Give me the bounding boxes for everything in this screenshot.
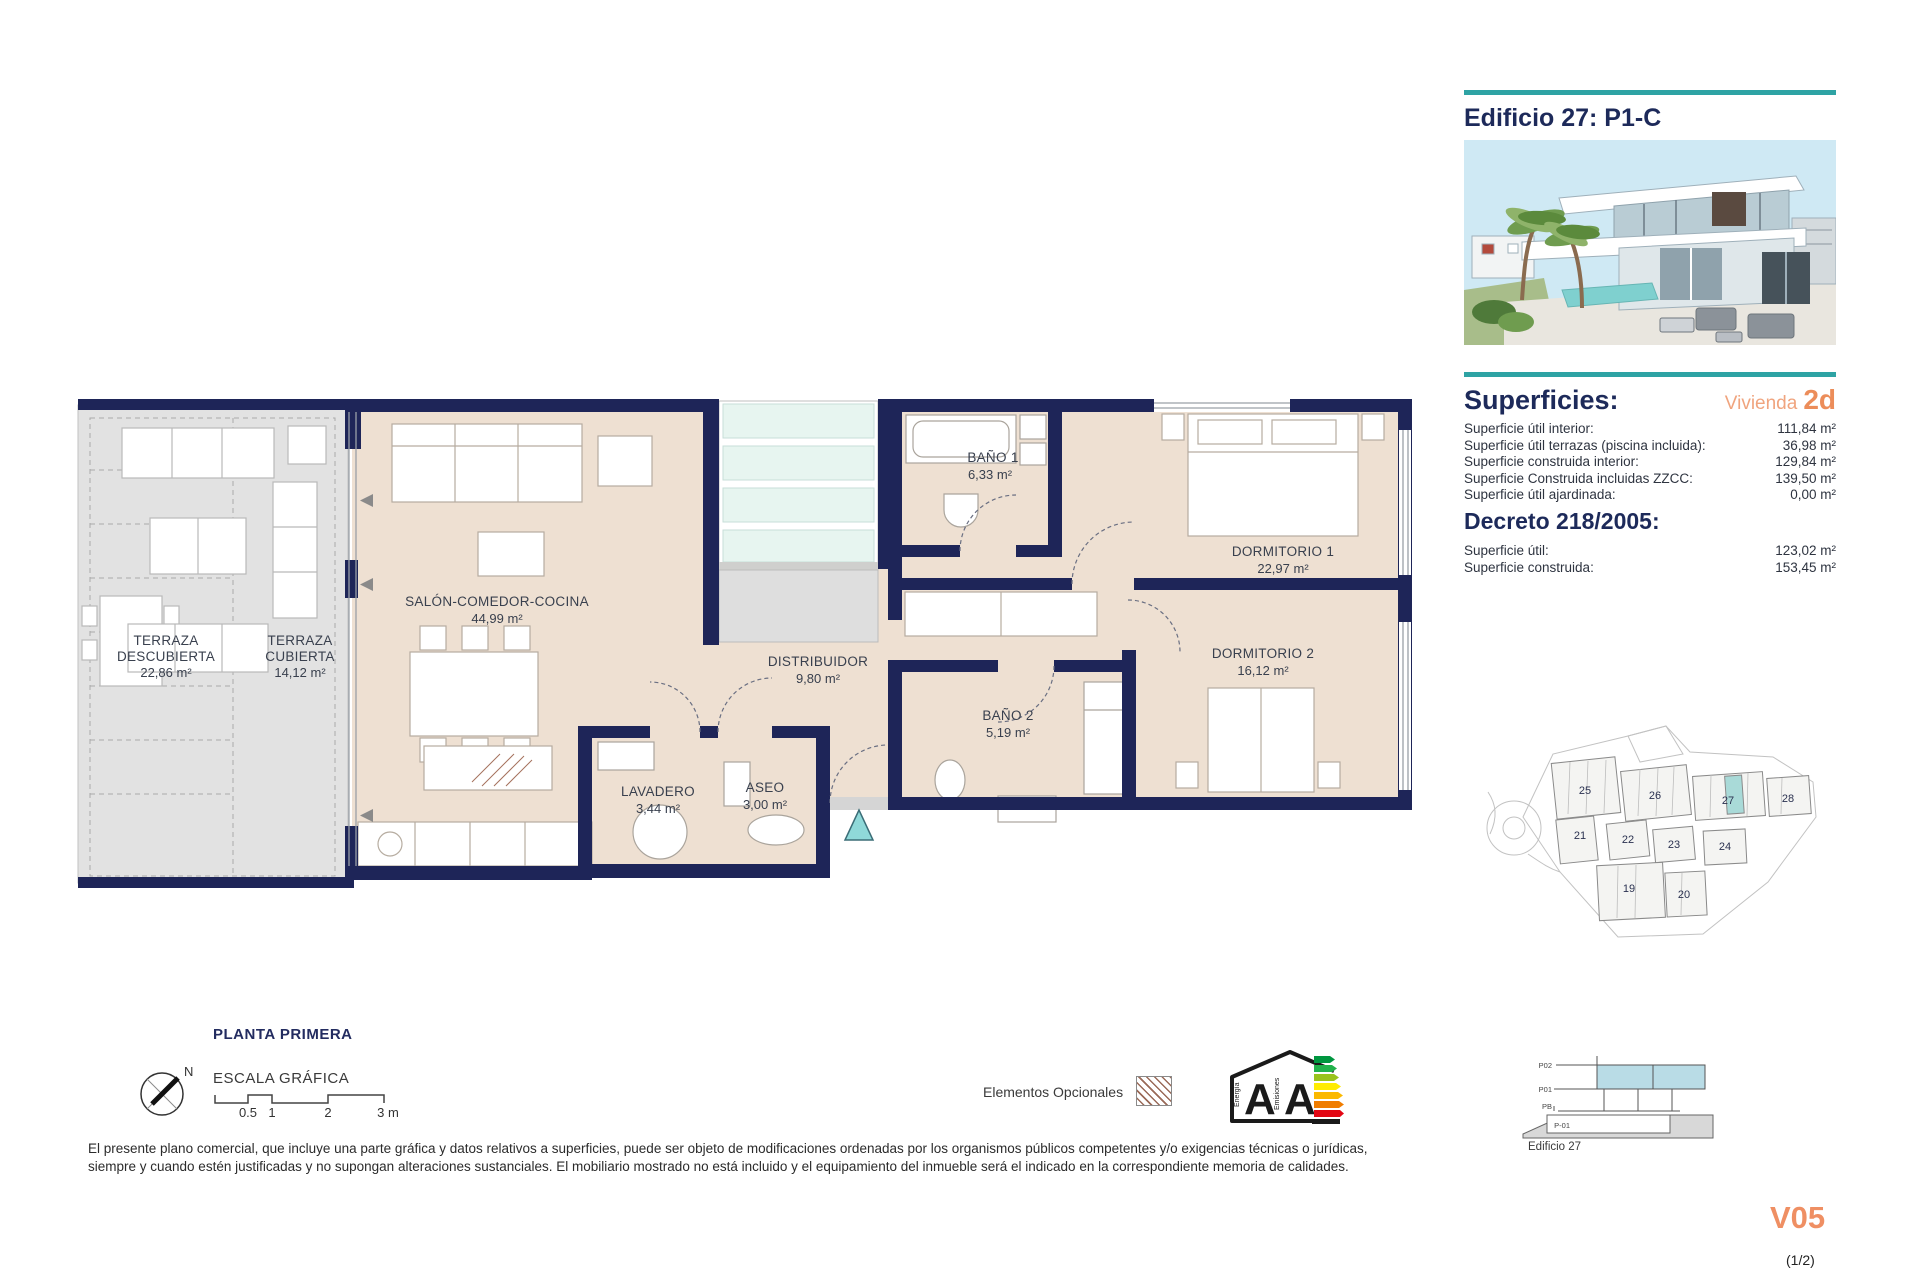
lightwell: [719, 401, 878, 642]
page-number: (1/2): [1786, 1252, 1815, 1268]
page-title: Edificio 27: P1-C: [1464, 104, 1661, 133]
decreto-table: Superficie útil: 123,02 m² Superficie co…: [1464, 543, 1836, 576]
site-plan: 25 26 27 28 21 22 23 24 19 20: [1468, 722, 1868, 957]
room-label-salon: SALÓN-COMEDOR-COCINA: [405, 594, 589, 609]
corridor-closets: [905, 592, 1097, 636]
sup-value-0: 111,84 m²: [1777, 421, 1836, 438]
room-area-terraza-descubierta: 22,86 m²: [140, 665, 192, 680]
entrance-marker: [830, 797, 888, 840]
villa-render-image: [1464, 140, 1836, 345]
superficies-row: Superficie construida interior: 129,84 m…: [1464, 454, 1836, 471]
building-28: 28: [1782, 793, 1794, 805]
decreto-value-0: 123,02 m²: [1775, 543, 1836, 560]
decreto-heading: Decreto 218/2005:: [1464, 508, 1660, 535]
decreto-label-0: Superficie útil:: [1464, 543, 1549, 560]
energy-letter-1: A: [1244, 1075, 1276, 1124]
energy-bars: [1314, 1056, 1344, 1117]
room-area-bano1: 6,33 m²: [968, 467, 1013, 482]
superficies-row: Superficie útil ajardinada: 0,00 m²: [1464, 487, 1836, 504]
teal-divider-top: [1464, 90, 1836, 95]
level-pb: PB: [1542, 1102, 1552, 1111]
room-label-terraza-cubierta-2: CUBIERTA: [265, 649, 334, 664]
room-label-bano2: BAÑO 2: [982, 708, 1033, 723]
level-p-01: P-01: [1554, 1121, 1570, 1130]
building-23: 23: [1668, 839, 1680, 851]
room-area-terraza-cubierta: 14,12 m²: [274, 665, 326, 680]
vivienda-unit: 2d: [1803, 384, 1836, 415]
scale-tick-2: 2: [324, 1105, 331, 1118]
building-26: 26: [1649, 790, 1661, 802]
optional-elements-hatch-swatch: [1136, 1076, 1172, 1106]
disclaimer-line-1: El presente plano comercial, que incluye…: [88, 1140, 1588, 1158]
room-area-bano2: 5,19 m²: [986, 725, 1031, 740]
room-area-distribuidor: 9,80 m²: [796, 671, 841, 686]
vivienda-label: Vivienda: [1725, 393, 1798, 414]
building-section: P02 P01 PB P-01: [1520, 1052, 1730, 1140]
sup-label-2: Superficie construida interior:: [1464, 454, 1639, 471]
room-label-bano1: BAÑO 1: [967, 450, 1018, 465]
building-22: 22: [1622, 834, 1634, 846]
room-label-terraza-descubierta-2: DESCUBIERTA: [117, 649, 215, 664]
room-label-terraza-descubierta: TERRAZA: [133, 633, 198, 648]
scale-tick-3: 3 m: [377, 1105, 399, 1118]
sup-label-0: Superficie útil interior:: [1464, 421, 1594, 438]
teal-divider-middle: [1464, 372, 1836, 377]
room-label-dormitorio1: DORMITORIO 1: [1232, 544, 1334, 559]
room-label-lavadero: LAVADERO: [621, 784, 695, 799]
room-label-aseo: ASEO: [746, 780, 785, 795]
building-19: 19: [1623, 883, 1635, 895]
version-code: V05: [1770, 1200, 1825, 1236]
decreto-row: Superficie construida: 153,45 m²: [1464, 560, 1836, 577]
dormitorio1-furniture: [1162, 414, 1384, 536]
section-caption: Edificio 27: [1528, 1141, 1581, 1153]
optional-elements-label: Elementos Opcionales: [983, 1084, 1123, 1100]
energy-rating-icon: Energía Emisiones A A: [1222, 1044, 1344, 1128]
scale-tick-1: 1: [268, 1105, 275, 1118]
sup-label-3: Superficie Construida incluidas ZZCC:: [1464, 471, 1693, 488]
room-area-dormitorio2: 16,12 m²: [1237, 663, 1289, 678]
energy-letter-2: A: [1284, 1075, 1316, 1124]
superficies-row: Superficie Construida incluidas ZZCC: 13…: [1464, 471, 1836, 488]
disclaimer-line-2: siempre y cuando estén justificadas y no…: [88, 1158, 1588, 1176]
building-25: 25: [1579, 785, 1591, 797]
level-p02: P02: [1539, 1061, 1552, 1070]
decreto-row: Superficie útil: 123,02 m²: [1464, 543, 1836, 560]
decreto-value-1: 153,45 m²: [1775, 560, 1836, 577]
superficies-row: Superficie útil terrazas (piscina inclui…: [1464, 438, 1836, 455]
building-21: 21: [1574, 830, 1586, 842]
level-p01: P01: [1539, 1085, 1552, 1094]
room-label-terraza-cubierta: TERRAZA: [267, 633, 332, 648]
vivienda-group: Vivienda2d: [1725, 384, 1836, 416]
superficies-heading: Superficies:: [1464, 385, 1619, 416]
disclaimer: El presente plano comercial, que incluye…: [88, 1140, 1588, 1176]
room-area-dormitorio1: 22,97 m²: [1257, 561, 1309, 576]
room-label-dormitorio2: DORMITORIO 2: [1212, 646, 1314, 661]
scale-bar: 0.5 1 2 3 m: [210, 1086, 410, 1118]
building-27: 27: [1722, 795, 1734, 807]
energy-axis-left: Energía: [1234, 1082, 1241, 1107]
sup-value-1: 36,98 m²: [1783, 438, 1836, 455]
floor-plan: TERRAZA DESCUBIERTA 22,86 m² TERRAZA CUB…: [60, 390, 1420, 900]
building-24: 24: [1719, 841, 1731, 853]
decreto-label-1: Superficie construida:: [1464, 560, 1594, 577]
superficies-header: Superficies: Vivienda2d: [1464, 384, 1836, 416]
sup-value-2: 129,84 m²: [1775, 454, 1836, 471]
sup-value-3: 139,50 m²: [1775, 471, 1836, 488]
room-area-lavadero: 3,44 m²: [636, 801, 681, 816]
scale-label: ESCALA GRÁFICA: [213, 1070, 349, 1087]
room-area-aseo: 3,00 m²: [743, 797, 788, 812]
compass-icon: N: [138, 1064, 198, 1120]
plan-title: PLANTA PRIMERA: [213, 1026, 353, 1043]
sup-label-4: Superficie útil ajardinada:: [1464, 487, 1616, 504]
building-20: 20: [1678, 889, 1690, 901]
section-highlight-floor: [1597, 1065, 1705, 1089]
sup-value-4: 0,00 m²: [1790, 487, 1836, 504]
sup-label-1: Superficie útil terrazas (piscina inclui…: [1464, 438, 1706, 455]
north-label: N: [184, 1064, 193, 1079]
scale-tick-05: 0.5: [239, 1105, 257, 1118]
superficies-row: Superficie útil interior: 111,84 m²: [1464, 421, 1836, 438]
room-area-salon: 44,99 m²: [471, 611, 523, 626]
superficies-table: Superficie útil interior: 111,84 m² Supe…: [1464, 421, 1836, 504]
room-label-distribuidor: DISTRIBUIDOR: [768, 654, 868, 669]
